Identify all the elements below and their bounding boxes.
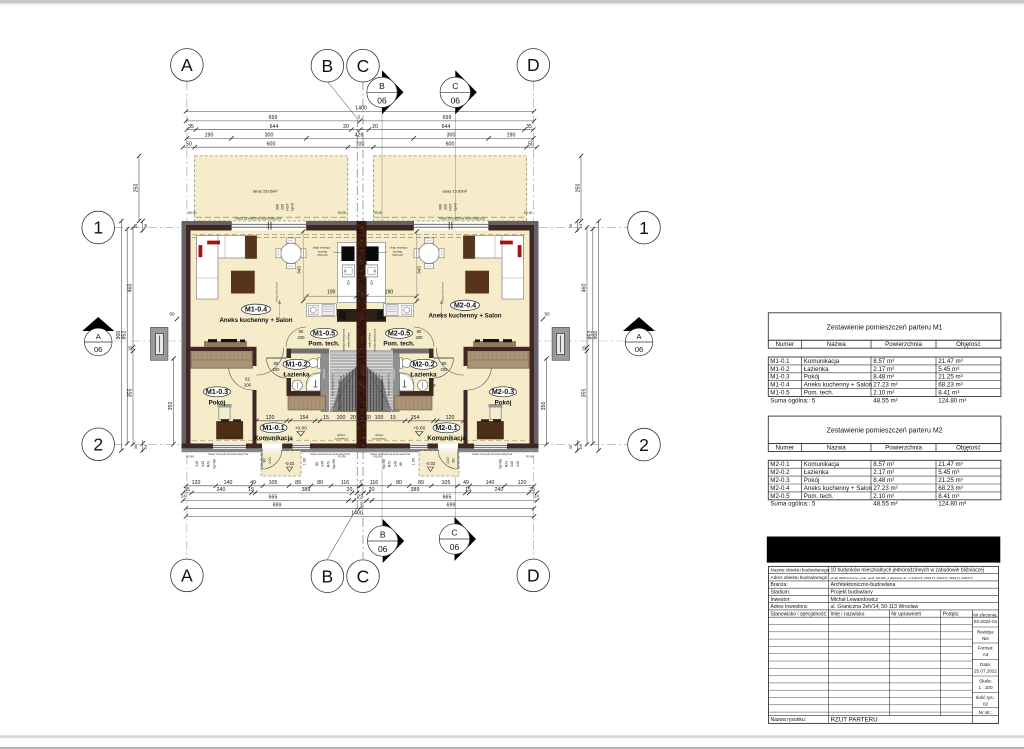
svg-text:bieg schodowy: bieg schodowy: [441, 282, 445, 302]
svg-text:roleta zewnętrzna automatyczna: roleta zewnętrzna automatyczna: [235, 216, 281, 220]
svg-text:GEBERIT: GEBERIT: [393, 368, 396, 379]
svg-text:35: 35: [568, 444, 573, 449]
svg-text:Michał Lewandowicz: Michał Lewandowicz: [831, 597, 879, 603]
svg-text:-0.02: -0.02: [426, 461, 436, 466]
svg-text:hp=0: hp=0: [291, 203, 295, 211]
svg-text:80: 80: [396, 480, 402, 486]
svg-text:105: 105: [442, 480, 451, 486]
svg-text:RS:80: RS:80: [526, 455, 534, 459]
svg-text:03-2022-01: 03-2022-01: [974, 619, 998, 624]
svg-text:C: C: [357, 56, 370, 76]
svg-text:35: 35: [184, 487, 190, 493]
svg-text:Numer: Numer: [776, 341, 795, 348]
svg-text:48.55 m²: 48.55 m²: [873, 397, 897, 404]
svg-text:350: 350: [541, 402, 547, 411]
svg-text:1.00: 1.00: [302, 458, 306, 465]
svg-text:HST: HST: [286, 203, 290, 211]
svg-text:20: 20: [365, 415, 371, 421]
svg-text:15: 15: [323, 415, 329, 421]
svg-text:Nr zlecenia:: Nr zlecenia:: [973, 612, 997, 617]
svg-text:100: 100: [375, 415, 384, 421]
svg-text:wys. schodów 17,2: wys. schodów 17,2: [387, 373, 391, 395]
svg-text:Pom. tech.: Pom. tech.: [308, 341, 340, 348]
svg-text:300: 300: [276, 204, 280, 210]
svg-text:Aneks kuchenny + Salon: Aneks kuchenny + Salon: [804, 485, 873, 492]
svg-text:21.25 m³: 21.25 m³: [938, 374, 962, 381]
svg-text:5.45 m³: 5.45 m³: [938, 366, 959, 373]
svg-text:Nr str.:: Nr str.:: [979, 710, 993, 715]
svg-text:rozdzielcza: rozdzielcza: [334, 437, 348, 441]
svg-text:200: 200: [273, 367, 281, 372]
svg-text:190: 190: [327, 290, 336, 296]
svg-text:Komunikacja: Komunikacja: [804, 358, 840, 365]
svg-text:100: 100: [337, 415, 346, 421]
svg-text:21.47 m³: 21.47 m³: [938, 358, 962, 365]
svg-text:8.41 m³: 8.41 m³: [938, 493, 959, 500]
svg-text:A: A: [636, 332, 641, 341]
svg-text:140: 140: [516, 461, 520, 467]
svg-text:15: 15: [582, 346, 587, 352]
svg-text:15: 15: [128, 346, 133, 352]
svg-text:700m³/h: 700m³/h: [317, 253, 328, 257]
svg-text:699: 699: [269, 115, 278, 121]
svg-text:200: 200: [441, 367, 449, 372]
svg-text:M1-0.5: M1-0.5: [313, 329, 335, 338]
svg-text:obręb 0009 Krzeczyn, jedn. ewi: obręb 0009 Krzeczyn, jedn. ewid. 021406_…: [831, 576, 973, 580]
svg-text:20: 20: [343, 124, 349, 130]
svg-text:bieg schodowy 9x17,2x25: bieg schodowy 9x17,2x25: [337, 380, 341, 410]
svg-text:90: 90: [263, 458, 267, 462]
svg-text:Komunikacja: Komunikacja: [427, 435, 466, 442]
svg-text:116: 116: [370, 480, 378, 486]
svg-text:Imię i nazwisko: Imię i nazwisko: [831, 611, 865, 617]
svg-text:240: 240: [495, 487, 504, 493]
svg-text:Zestawienie pomieszczeń parter: Zestawienie pomieszczeń parteru M2: [827, 428, 943, 435]
svg-text:06: 06: [635, 345, 643, 354]
svg-text:M2-0.5: M2-0.5: [770, 493, 790, 500]
svg-text:80: 80: [417, 329, 422, 334]
svg-text:27.23 m²: 27.23 m²: [873, 382, 897, 389]
svg-text:Podpis:: Podpis:: [943, 611, 960, 617]
svg-text:460: 460: [582, 284, 588, 293]
svg-text:M1-0.3: M1-0.3: [206, 387, 228, 396]
svg-text:B: B: [379, 81, 385, 91]
svg-text:240: 240: [217, 487, 226, 493]
svg-text:Objętość: Objętość: [956, 444, 980, 451]
svg-text:C: C: [357, 566, 370, 586]
svg-text:15: 15: [465, 487, 471, 493]
svg-text:M1-0.1: M1-0.1: [262, 423, 284, 432]
svg-text:Adres obiektu budowlanego:: Adres obiektu budowlanego:: [771, 575, 829, 580]
svg-text:350: 350: [168, 402, 174, 411]
svg-text:852: 852: [587, 331, 593, 340]
svg-text:2.17 m²: 2.17 m²: [873, 469, 894, 476]
svg-text:02: 02: [983, 702, 989, 707]
svg-text:343: 343: [297, 266, 302, 274]
svg-text:06: 06: [378, 544, 388, 554]
svg-text:RS:80: RS:80: [338, 455, 346, 459]
svg-text:20: 20: [350, 415, 356, 421]
svg-text:Suma ogólna:: 5: Suma ogólna:: 5: [770, 501, 816, 508]
svg-text:140: 140: [224, 480, 233, 486]
svg-text:644: 644: [442, 124, 451, 130]
svg-text:460: 460: [128, 284, 134, 293]
svg-text:100: 100: [356, 141, 365, 147]
svg-text:300: 300: [447, 133, 456, 139]
svg-text:200: 200: [244, 383, 252, 388]
svg-text:210: 210: [268, 457, 272, 463]
svg-text:R/U: R/U: [388, 461, 392, 468]
svg-text:1400: 1400: [355, 106, 367, 112]
svg-text:Stadium:: Stadium:: [771, 590, 791, 596]
svg-text:80: 80: [315, 462, 319, 466]
svg-text:wełna 50mm: wełna 50mm: [368, 333, 372, 348]
svg-text:1 : 100: 1 : 100: [978, 685, 992, 690]
svg-text:300: 300: [439, 204, 443, 210]
svg-text:8.41 m³: 8.41 m³: [938, 390, 959, 397]
svg-text:Nie: Nie: [982, 636, 989, 641]
svg-text:+0.00: +0.00: [295, 426, 307, 432]
svg-text:49: 49: [250, 480, 256, 486]
svg-text:Numer: Numer: [776, 444, 795, 451]
svg-text:Suma ogólna:: 5: Suma ogólna:: 5: [770, 397, 816, 404]
svg-text:8.57 m²: 8.57 m²: [873, 358, 894, 365]
svg-text:Powierzchnia: Powierzchnia: [885, 341, 922, 348]
svg-text:RS:80: RS:80: [186, 455, 194, 459]
svg-text:116: 116: [341, 480, 349, 486]
svg-text:80: 80: [274, 361, 279, 366]
svg-text:Nazwa rysunku:: Nazwa rysunku:: [771, 717, 807, 723]
svg-text:15: 15: [248, 487, 254, 493]
svg-text:120: 120: [192, 480, 201, 486]
svg-text:Pom. tech.: Pom. tech.: [383, 341, 415, 348]
svg-text:200: 200: [298, 335, 306, 340]
svg-text:M2-0.5: M2-0.5: [388, 329, 410, 338]
svg-text:124.80 m³: 124.80 m³: [938, 397, 966, 404]
svg-text:izolacja akustyczna: izolacja akustyczna: [373, 328, 377, 351]
svg-text:82: 82: [245, 377, 250, 382]
svg-text:HST: HST: [449, 203, 453, 211]
svg-text:M1-0.4: M1-0.4: [770, 382, 790, 389]
svg-text:426: 426: [355, 133, 364, 139]
svg-text:Rewizja:: Rewizja:: [977, 630, 994, 635]
svg-text:R/U: R/U: [504, 461, 508, 468]
svg-text:8.48 m²: 8.48 m²: [873, 477, 894, 484]
svg-text:RS:80: RS:80: [188, 211, 197, 215]
svg-text:Pokój: Pokój: [495, 400, 512, 407]
svg-text:M2-0.4: M2-0.4: [454, 301, 476, 310]
svg-text:Komunikacja: Komunikacja: [804, 461, 840, 468]
svg-text:C: C: [452, 81, 458, 91]
svg-text:1400: 1400: [351, 511, 363, 517]
svg-text:A: A: [181, 55, 193, 75]
svg-text:Pokój: Pokój: [804, 374, 819, 381]
svg-text:M1-0.2: M1-0.2: [285, 360, 307, 369]
svg-text:M1-0.1: M1-0.1: [770, 358, 790, 365]
svg-text:190: 190: [205, 133, 214, 139]
svg-text:49: 49: [463, 480, 469, 486]
svg-text:M1-0.3: M1-0.3: [770, 374, 790, 381]
svg-text:200: 200: [416, 335, 424, 340]
svg-text:+0.00: +0.00: [413, 426, 425, 432]
svg-text:36: 36: [568, 223, 573, 228]
svg-text:90: 90: [452, 458, 456, 462]
svg-text:Pom. tech.: Pom. tech.: [804, 493, 834, 500]
svg-text:Adres Inwestora:: Adres Inwestora:: [771, 604, 809, 610]
svg-text:RZUT PARTERU: RZUT PARTERU: [831, 716, 878, 723]
svg-text:68.23 m³: 68.23 m³: [938, 382, 962, 389]
svg-text:B: B: [380, 530, 386, 540]
svg-text:Łazienka: Łazienka: [804, 469, 829, 476]
svg-text:105: 105: [269, 480, 278, 486]
svg-text:R/U: R/U: [326, 461, 330, 468]
svg-text:140: 140: [486, 480, 495, 486]
svg-text:Inwestor:: Inwestor:: [771, 597, 791, 603]
svg-text:rozdzielcza: rozdzielcza: [372, 437, 386, 441]
svg-text:M2-0.1: M2-0.1: [770, 461, 790, 468]
svg-text:8.57 m²: 8.57 m²: [873, 461, 894, 468]
svg-text:Łazienka: Łazienka: [283, 372, 310, 379]
svg-text:20: 20: [369, 487, 375, 493]
svg-text:roleta zewnętrzna automatyczna: roleta zewnętrzna automatyczna: [472, 452, 513, 456]
svg-text:izolacja akustyczna: izolacja akustyczna: [342, 328, 346, 351]
svg-text:Łazienka: Łazienka: [410, 372, 437, 379]
svg-text:120: 120: [446, 415, 455, 421]
svg-text:06: 06: [451, 95, 461, 105]
svg-text:1: 1: [639, 218, 649, 238]
svg-text:190: 190: [507, 133, 516, 139]
svg-text:Nazwa: Nazwa: [827, 341, 846, 348]
svg-text:140: 140: [393, 461, 397, 467]
svg-text:35: 35: [529, 487, 535, 493]
svg-text:Pokój: Pokój: [209, 400, 226, 407]
svg-text:250: 250: [576, 184, 582, 193]
svg-text:Nazwa: Nazwa: [827, 444, 846, 451]
svg-text:A: A: [181, 566, 193, 586]
svg-text:2.17 m²: 2.17 m²: [873, 366, 894, 373]
svg-text:GEBERIT: GEBERIT: [323, 368, 326, 379]
svg-text:389: 389: [411, 487, 420, 493]
svg-text:80: 80: [442, 361, 447, 366]
svg-text:699: 699: [443, 115, 452, 121]
svg-text:35: 35: [526, 124, 532, 130]
svg-text:2: 2: [639, 435, 649, 455]
svg-text:21.25 m³: 21.25 m³: [938, 477, 962, 484]
svg-text:bieg schodowy 9x17,2x25: bieg schodowy 9x17,2x25: [380, 380, 384, 410]
svg-text:50: 50: [544, 312, 550, 317]
svg-text:taras 15,05m²: taras 15,05m²: [253, 189, 278, 194]
svg-text:M1-0.5: M1-0.5: [770, 390, 790, 397]
svg-text:RS:80: RS:80: [374, 211, 383, 215]
svg-text:24: 24: [534, 494, 539, 499]
svg-text:M1-0.2: M1-0.2: [770, 366, 790, 373]
svg-text:Aneks kuchenny + Salon: Aneks kuchenny + Salon: [428, 313, 501, 320]
svg-text:343: 343: [417, 266, 422, 274]
svg-text:hp=90: hp=90: [382, 459, 386, 469]
svg-text:20: 20: [347, 487, 353, 493]
svg-text:A: A: [96, 332, 101, 341]
svg-text:D: D: [527, 55, 540, 75]
svg-text:M2-0.1: M2-0.1: [435, 423, 457, 432]
svg-text:RS:80: RS:80: [338, 211, 347, 215]
svg-text:36: 36: [143, 223, 148, 228]
svg-text:140: 140: [195, 461, 199, 467]
svg-text:15: 15: [390, 415, 396, 421]
svg-text:M2-0.3: M2-0.3: [492, 387, 514, 396]
svg-text:Pom. tech.: Pom. tech.: [804, 390, 834, 397]
svg-text:50: 50: [528, 141, 534, 147]
svg-text:35: 35: [133, 444, 138, 449]
svg-text:wełna 50mm: wełna 50mm: [347, 333, 351, 348]
svg-text:M2-0.2: M2-0.2: [770, 469, 790, 476]
svg-text:140: 140: [201, 461, 205, 467]
svg-text:D: D: [527, 566, 540, 586]
svg-text:50: 50: [169, 312, 175, 317]
svg-text:M2-0.2: M2-0.2: [412, 360, 434, 369]
svg-text:48.55 m²: 48.55 m²: [873, 501, 897, 508]
svg-text:Stanowisko i specjalność:: Stanowisko i specjalność:: [771, 611, 828, 617]
svg-text:355: 355: [128, 389, 134, 398]
svg-text:C: C: [451, 528, 457, 538]
svg-text:bieg schodowy: bieg schodowy: [275, 282, 279, 302]
svg-text:50: 50: [186, 141, 192, 147]
svg-text:06: 06: [450, 542, 460, 552]
svg-text:250: 250: [134, 184, 140, 193]
svg-text:852: 852: [122, 331, 128, 340]
svg-text:A3: A3: [983, 652, 989, 657]
svg-text:Format:: Format:: [978, 646, 994, 651]
svg-text:ul. Graniczna 2eh/14, 50-113 W: ul. Graniczna 2eh/14, 50-113 Wrocław: [831, 604, 919, 610]
svg-text:22: 22: [357, 495, 363, 501]
svg-text:B: B: [322, 56, 334, 76]
svg-text:699: 699: [273, 503, 282, 509]
svg-text:RS:80: RS:80: [524, 211, 533, 215]
svg-text:24: 24: [578, 444, 583, 449]
svg-text:Aneks kuchenny + Salon: Aneks kuchenny + Salon: [219, 317, 292, 324]
svg-text:300: 300: [265, 133, 274, 139]
svg-text:80: 80: [399, 462, 403, 466]
svg-text:140: 140: [510, 461, 514, 467]
svg-text:Branża:: Branża:: [771, 582, 788, 588]
svg-text:124.80 m³: 124.80 m³: [938, 501, 966, 508]
svg-text:M2-0.3: M2-0.3: [770, 477, 790, 484]
svg-text:-0.02: -0.02: [285, 461, 295, 466]
svg-text:RS:80: RS:80: [374, 455, 382, 459]
svg-text:Projekt budowlany: Projekt budowlany: [831, 590, 874, 596]
svg-text:hp=90: hp=90: [212, 459, 216, 469]
svg-text:Nr uprawnień: Nr uprawnień: [891, 611, 921, 617]
svg-text:140: 140: [321, 461, 325, 467]
svg-text:5.45 m³: 5.45 m³: [938, 469, 959, 476]
svg-text:355: 355: [582, 389, 588, 398]
svg-text:120: 120: [266, 415, 275, 421]
svg-text:hp=90: hp=90: [499, 459, 503, 469]
svg-text:Pokój: Pokój: [804, 477, 819, 484]
svg-text:24: 24: [143, 444, 148, 449]
svg-text:8.48 m²: 8.48 m²: [873, 374, 894, 381]
svg-text:665: 665: [269, 495, 278, 501]
svg-text:210: 210: [446, 457, 450, 463]
svg-text:699: 699: [447, 503, 456, 509]
svg-text:230: 230: [444, 204, 448, 210]
svg-text:wys. schodów 17,2: wys. schodów 17,2: [331, 373, 335, 395]
svg-text:89: 89: [295, 480, 301, 486]
svg-text:B: B: [322, 566, 334, 586]
svg-text:M1-0.4: M1-0.4: [245, 305, 267, 314]
svg-text:600: 600: [267, 141, 276, 147]
svg-text:1.00: 1.00: [412, 458, 416, 465]
svg-text:Ilość rys.:: Ilość rys.:: [976, 695, 995, 700]
svg-text:Powierzchnia: Powierzchnia: [885, 444, 922, 451]
svg-text:roleta zewnętrzna automatyczna: roleta zewnętrzna automatyczna: [208, 452, 249, 456]
svg-text:1: 1: [93, 218, 103, 238]
svg-text:Skala:: Skala:: [979, 679, 992, 684]
svg-text:80: 80: [317, 480, 323, 486]
svg-text:Data:: Data:: [980, 662, 991, 667]
svg-text:06: 06: [94, 345, 102, 354]
svg-text:154: 154: [300, 415, 309, 421]
svg-text:24: 24: [133, 223, 138, 228]
svg-text:06: 06: [377, 95, 387, 105]
svg-text:Architektoniczno-budowlana: Architektoniczno-budowlana: [831, 582, 896, 588]
svg-text:hp=90: hp=90: [332, 459, 336, 469]
svg-text:644: 644: [270, 124, 279, 130]
svg-text:27.23 m²: 27.23 m²: [873, 485, 897, 492]
svg-text:35: 35: [188, 124, 194, 130]
svg-text:2.10 m²: 2.10 m²: [873, 390, 894, 397]
svg-text:154: 154: [411, 415, 420, 421]
svg-text:230: 230: [281, 204, 285, 210]
svg-text:21.47 m³: 21.47 m³: [938, 461, 962, 468]
svg-text:20: 20: [372, 124, 378, 130]
svg-text:190: 190: [385, 290, 394, 296]
svg-text:900: 900: [593, 331, 599, 340]
svg-text:600: 600: [446, 141, 455, 147]
svg-text:2.10 m²: 2.10 m²: [873, 493, 894, 500]
svg-text:10 budynków mieszkalnych jedno: 10 budynków mieszkalnych jednorodzinnych…: [831, 568, 984, 574]
svg-text:Łazienka: Łazienka: [804, 366, 829, 373]
svg-text:R/U: R/U: [207, 461, 211, 468]
svg-text:80: 80: [299, 329, 304, 334]
svg-text:120: 120: [518, 480, 527, 486]
svg-text:Komunikacja: Komunikacja: [254, 435, 293, 442]
svg-text:M2-0.4: M2-0.4: [770, 485, 790, 492]
svg-text:25.07.2022: 25.07.2022: [974, 669, 997, 674]
svg-text:665: 665: [443, 495, 452, 501]
svg-text:Zestawienie pomieszczeń parter: Zestawienie pomieszczeń parteru M1: [827, 324, 943, 331]
svg-text:Objętość: Objętość: [956, 341, 980, 348]
svg-text:24: 24: [578, 223, 583, 228]
svg-text:Aneks kuchenny + Salon: Aneks kuchenny + Salon: [804, 382, 873, 389]
svg-text:389: 389: [302, 487, 311, 493]
svg-text:700m³/h: 700m³/h: [392, 253, 403, 257]
svg-text:2: 2: [93, 435, 103, 455]
svg-text:24: 24: [181, 494, 186, 499]
svg-text:Nazwa obiektu budowlanego:: Nazwa obiektu budowlanego:: [771, 568, 831, 573]
svg-text:roleta zewnętrzna automatyczna: roleta zewnętrzna automatyczna: [439, 216, 485, 220]
svg-text:68.23 m³: 68.23 m³: [938, 485, 962, 492]
svg-text:89: 89: [418, 480, 424, 486]
